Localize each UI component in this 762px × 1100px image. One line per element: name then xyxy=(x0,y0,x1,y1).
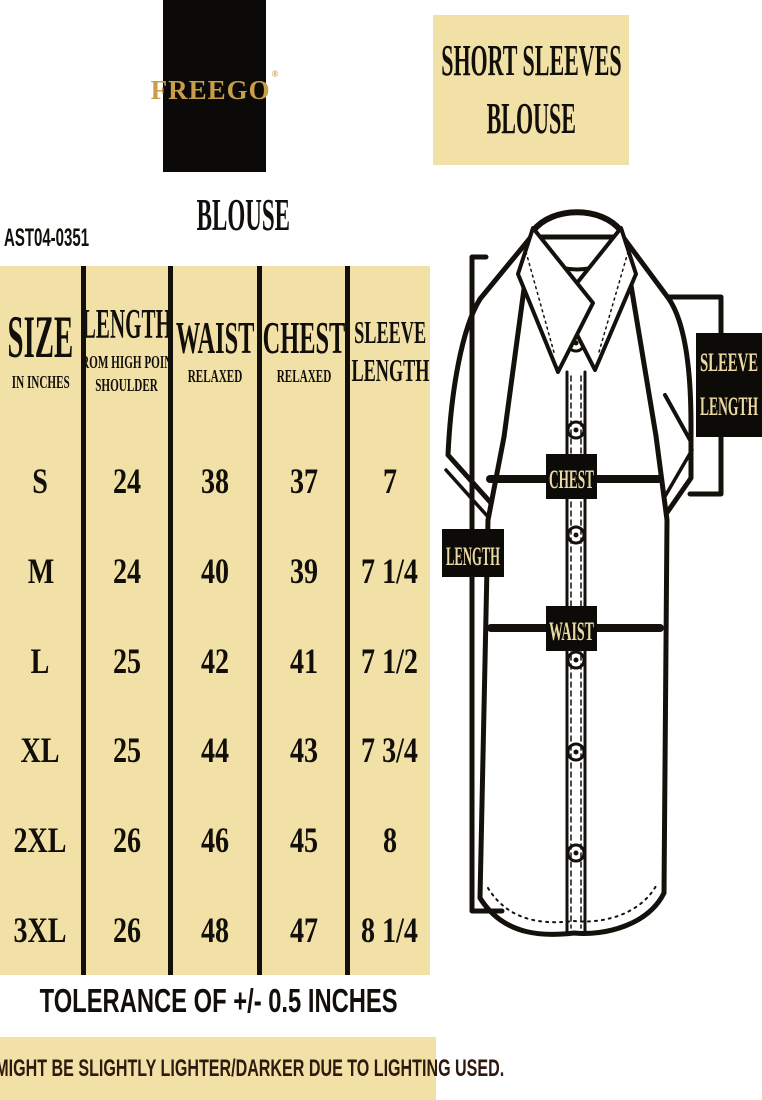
tolerance-note-text: TOLERANCE OF +/- 0.5 INCHES xyxy=(40,982,398,1020)
length-value: 26 xyxy=(113,909,141,951)
table-row-cell: L xyxy=(0,616,86,706)
table-row-cell: 45 xyxy=(262,795,350,885)
header-sublabel: IN INCHES xyxy=(12,372,70,393)
chest-value: 41 xyxy=(289,640,317,682)
table-row-cell: 2XL xyxy=(0,795,86,885)
length-label-text: LENGTH xyxy=(446,542,500,571)
header-sublabel: RELAXED xyxy=(276,366,331,387)
table-row-cell: 25 xyxy=(86,616,173,706)
length-value: 26 xyxy=(113,819,141,861)
waist-value: 44 xyxy=(201,729,229,771)
table-row-cell: 3XL xyxy=(0,885,86,975)
size-value: L xyxy=(31,640,50,682)
table-row-cell: 26 xyxy=(86,795,173,885)
brand-logo-box: FREEGO® xyxy=(163,0,266,172)
header-label: SLEEVE xyxy=(354,317,426,347)
product-title-box: SHORT SLEEVES BLOUSE xyxy=(433,15,629,165)
table-row-cell: 40 xyxy=(173,526,262,616)
header-sublabel: SHOULDER xyxy=(96,375,159,396)
header-label: SIZE xyxy=(8,309,74,366)
sleeve-value: 7 xyxy=(383,460,397,502)
header-label: LENGTH xyxy=(86,306,172,346)
table-row-cell: 7 xyxy=(350,436,430,526)
table-row-cell: 8 1/4 xyxy=(350,885,430,975)
table-row-cell: 37 xyxy=(262,436,350,526)
chest-value: 43 xyxy=(289,729,317,771)
sleeve-value: 7 3/4 xyxy=(362,729,419,771)
sleeve-value: 7 1/4 xyxy=(362,550,419,592)
waist-label-text: WAIST xyxy=(549,617,594,646)
header-label: LENGTH xyxy=(351,355,429,385)
registered-trademark-symbol: ® xyxy=(272,69,280,79)
table-row-cell: 48 xyxy=(173,885,262,975)
size-value: 3XL xyxy=(14,909,67,951)
chest-value: 37 xyxy=(289,460,317,502)
waist-value: 46 xyxy=(201,819,229,861)
length-value: 25 xyxy=(113,729,141,771)
table-row-cell: 26 xyxy=(86,885,173,975)
chest-label-text: CHEST xyxy=(549,465,594,494)
chest-label: CHEST xyxy=(546,454,597,499)
table-row-cell: 47 xyxy=(262,885,350,975)
column-header-size: SIZE IN INCHES xyxy=(0,266,86,436)
length-label: LENGTH xyxy=(442,529,504,577)
column-header-length: LENGTH FROM HIGH POINT SHOULDER xyxy=(86,266,173,436)
chest-value: 45 xyxy=(289,819,317,861)
header-label: CHEST xyxy=(262,316,345,360)
size-chart-page: { "brand": { "logo_text": "FREEGO", "reg… xyxy=(0,0,762,1100)
header-sublabel: RELAXED xyxy=(188,366,243,387)
table-row-cell: 46 xyxy=(173,795,262,885)
header-label: WAIST xyxy=(176,316,255,360)
sleeve-length-label-line1: SLEEVE xyxy=(700,348,758,377)
length-value: 24 xyxy=(113,460,141,502)
header-sublabel: FROM HIGH POINT xyxy=(86,352,173,373)
sleeve-value: 8 xyxy=(383,819,397,861)
column-header-chest: CHEST RELAXED xyxy=(262,266,350,436)
sleeve-value: 7 1/2 xyxy=(362,640,419,682)
product-title-line1: SHORT SLEEVES xyxy=(441,39,621,83)
tolerance-note: TOLERANCE OF +/- 0.5 INCHES xyxy=(0,982,437,1020)
sleeve-length-label-line2: LENGTH xyxy=(700,392,758,421)
column-header-sleeve-length: SLEEVE LENGTH xyxy=(350,266,430,436)
length-value: 25 xyxy=(113,640,141,682)
chest-value: 39 xyxy=(289,550,317,592)
waist-value: 48 xyxy=(201,909,229,951)
table-row-cell: XL xyxy=(0,706,86,796)
brand-logo: FREEGO® xyxy=(151,75,279,106)
table-row-cell: 44 xyxy=(173,706,262,796)
table-row-cell: 43 xyxy=(262,706,350,796)
table-row-cell: 8 xyxy=(350,795,430,885)
table-row-cell: 41 xyxy=(262,616,350,706)
waist-value: 42 xyxy=(201,640,229,682)
length-value: 24 xyxy=(113,550,141,592)
table-row-cell: S xyxy=(0,436,86,526)
sleeve-length-label: SLEEVE LENGTH xyxy=(696,333,762,437)
chest-value: 47 xyxy=(289,909,317,951)
table-row-cell: 24 xyxy=(86,526,173,616)
table-row-cell: M xyxy=(0,526,86,616)
sku-code-text: AST04-0351 xyxy=(4,224,89,253)
table-row-cell: 39 xyxy=(262,526,350,616)
product-heading-text: BLOUSE xyxy=(197,188,290,241)
brand-logo-text: FREEGO xyxy=(151,75,271,105)
table-row-cell: 25 xyxy=(86,706,173,796)
disclaimer-bar: COLOR MIGHT BE SLIGHTLY LIGHTER/DARKER D… xyxy=(0,1037,436,1100)
sleeve-value: 8 1/4 xyxy=(362,909,419,951)
table-row-cell: 42 xyxy=(173,616,262,706)
size-value: S xyxy=(33,460,49,502)
disclaimer-text: COLOR MIGHT BE SLIGHTLY LIGHTER/DARKER D… xyxy=(0,1055,504,1083)
table-row-cell: 38 xyxy=(173,436,262,526)
product-title-line2: BLOUSE xyxy=(486,97,575,141)
table-row-cell: 7 3/4 xyxy=(350,706,430,796)
column-header-waist: WAIST RELAXED xyxy=(173,266,262,436)
size-value: XL xyxy=(21,729,60,771)
size-chart-table: SIZE IN INCHES LENGTH FROM HIGH POINT SH… xyxy=(0,266,430,975)
table-row-cell: 7 1/4 xyxy=(350,526,430,616)
table-row-cell: 24 xyxy=(86,436,173,526)
size-value: 2XL xyxy=(14,819,67,861)
table-row-cell: 7 1/2 xyxy=(350,616,430,706)
size-value: M xyxy=(27,550,54,592)
blouse-measurement-diagram: SLEEVE LENGTH CHEST LENGTH WAIST xyxy=(435,200,762,945)
waist-label: WAIST xyxy=(546,606,597,651)
waist-value: 38 xyxy=(201,460,229,502)
product-heading: BLOUSE xyxy=(150,188,280,241)
waist-value: 40 xyxy=(201,550,229,592)
sku-code: AST04-0351 xyxy=(4,224,146,253)
